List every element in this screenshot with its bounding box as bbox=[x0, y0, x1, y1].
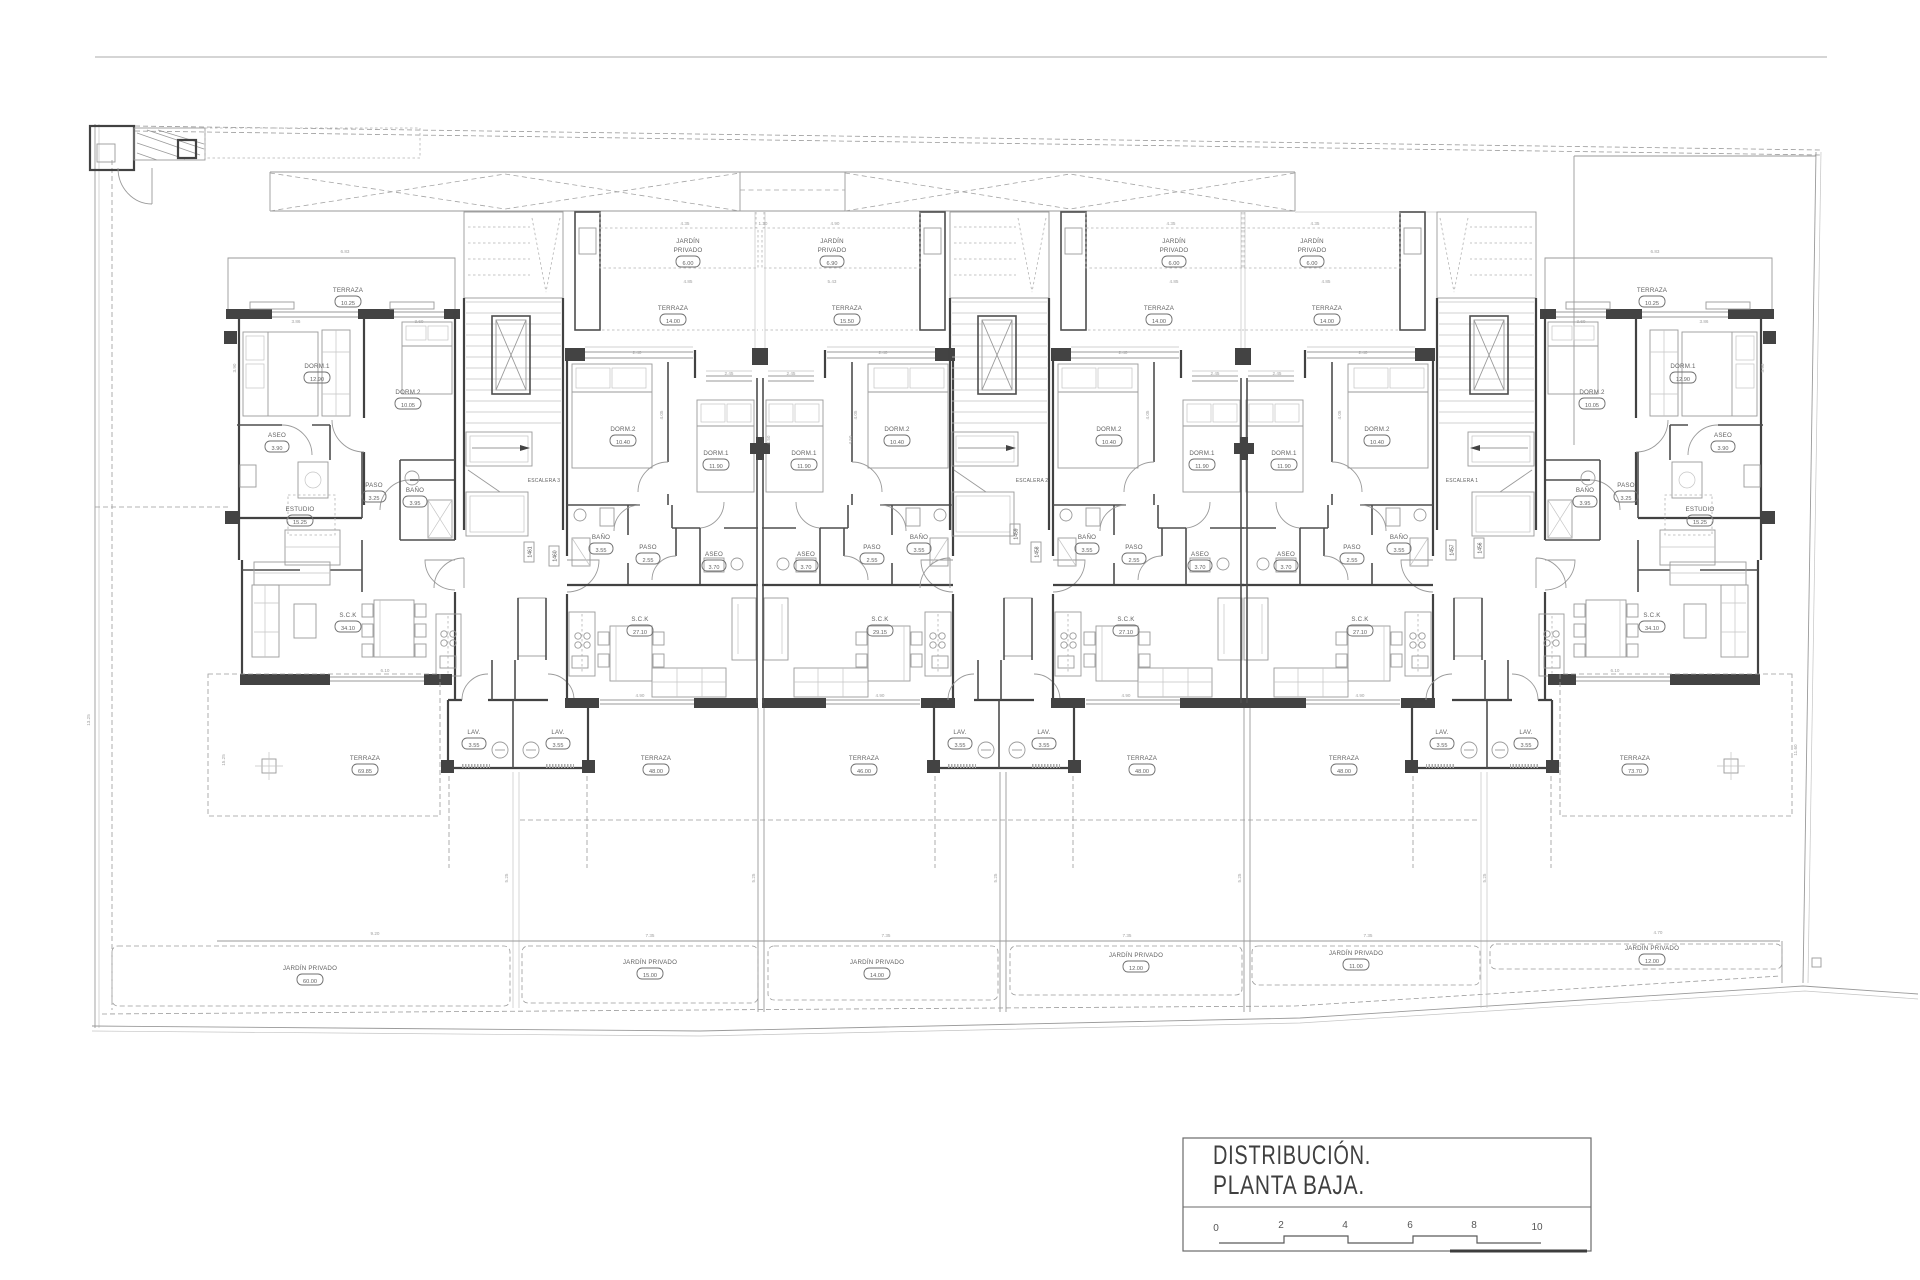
svg-text:TERRAZA: TERRAZA bbox=[1620, 755, 1651, 762]
svg-text:12.90: 12.90 bbox=[1676, 377, 1690, 383]
svg-text:6.00: 6.00 bbox=[1307, 261, 1318, 267]
svg-text:14.00: 14.00 bbox=[666, 319, 680, 325]
svg-text:5.25: 5.25 bbox=[751, 873, 756, 882]
svg-text:5.25: 5.25 bbox=[993, 873, 998, 882]
svg-text:15.00: 15.00 bbox=[643, 973, 657, 979]
svg-text:29.15: 29.15 bbox=[873, 630, 887, 636]
svg-text:4.50: 4.50 bbox=[848, 435, 853, 444]
svg-text:BAÑO: BAÑO bbox=[1078, 534, 1096, 541]
svg-text:15.25: 15.25 bbox=[293, 520, 307, 526]
svg-text:JARDÍN: JARDÍN bbox=[1300, 238, 1324, 245]
svg-text:10: 10 bbox=[1531, 1222, 1543, 1233]
svg-text:3.55: 3.55 bbox=[1394, 548, 1405, 554]
svg-text:11.90: 11.90 bbox=[1277, 464, 1291, 470]
svg-text:2: 2 bbox=[1278, 1220, 1284, 1231]
svg-text:DORM.1: DORM.1 bbox=[304, 363, 330, 370]
svg-text:PASO: PASO bbox=[1617, 482, 1635, 489]
svg-text:S.C.K: S.C.K bbox=[1351, 616, 1369, 623]
svg-text:46.00: 46.00 bbox=[857, 769, 871, 775]
svg-text:6.10: 6.10 bbox=[1611, 668, 1620, 673]
svg-text:TERRAZA: TERRAZA bbox=[832, 305, 863, 312]
svg-text:TERRAZA: TERRAZA bbox=[1329, 755, 1360, 762]
svg-text:10.05: 10.05 bbox=[1585, 403, 1599, 409]
svg-text:ESTUDIO: ESTUDIO bbox=[1686, 506, 1715, 513]
svg-text:3.70: 3.70 bbox=[1195, 565, 1206, 571]
svg-text:TERRAZA: TERRAZA bbox=[333, 287, 364, 294]
svg-text:10.40: 10.40 bbox=[616, 440, 630, 446]
svg-text:4.85: 4.85 bbox=[1170, 279, 1179, 284]
svg-text:2.45: 2.45 bbox=[787, 371, 796, 376]
svg-text:LAV.: LAV. bbox=[1037, 729, 1050, 736]
svg-text:DORM.2: DORM.2 bbox=[1096, 426, 1122, 433]
svg-text:3.86: 3.86 bbox=[292, 319, 301, 324]
svg-text:13.25: 13.25 bbox=[86, 714, 91, 726]
svg-text:JARDÍN PRIVADO: JARDÍN PRIVADO bbox=[623, 959, 677, 966]
svg-text:DORM.2: DORM.2 bbox=[395, 389, 421, 396]
svg-text:48.00: 48.00 bbox=[1135, 769, 1149, 775]
svg-text:10.05: 10.05 bbox=[401, 403, 415, 409]
svg-text:S.C.K: S.C.K bbox=[339, 612, 357, 619]
svg-text:4.70: 4.70 bbox=[1654, 930, 1663, 935]
svg-text:PRIVADO: PRIVADO bbox=[1160, 247, 1189, 254]
svg-text:LAV.: LAV. bbox=[467, 729, 480, 736]
svg-text:3.90: 3.90 bbox=[232, 363, 237, 372]
svg-text:69.85: 69.85 bbox=[358, 769, 372, 775]
svg-text:4.05: 4.05 bbox=[853, 410, 858, 419]
svg-text:4.85: 4.85 bbox=[1322, 279, 1331, 284]
svg-text:LAV.: LAV. bbox=[1519, 729, 1532, 736]
svg-text:6.83: 6.83 bbox=[1651, 249, 1660, 254]
svg-text:ESCALERA 3: ESCALERA 3 bbox=[528, 478, 561, 484]
svg-text:4.05: 4.05 bbox=[659, 410, 664, 419]
svg-text:10.25: 10.25 bbox=[1645, 301, 1659, 307]
svg-text:4.90: 4.90 bbox=[636, 693, 645, 698]
svg-text:2.45: 2.45 bbox=[1273, 371, 1282, 376]
svg-text:12.90: 12.90 bbox=[310, 377, 324, 383]
svg-text:LAV.: LAV. bbox=[1435, 729, 1448, 736]
svg-text:BAÑO: BAÑO bbox=[406, 487, 424, 494]
svg-text:3.70: 3.70 bbox=[709, 565, 720, 571]
svg-text:DORM.2: DORM.2 bbox=[610, 426, 636, 433]
svg-text:4.05: 4.05 bbox=[1337, 410, 1342, 419]
svg-text:BAÑO: BAÑO bbox=[1390, 534, 1408, 541]
svg-text:JARDÍN PRIVADO: JARDÍN PRIVADO bbox=[1625, 945, 1679, 952]
svg-text:TERRAZA: TERRAZA bbox=[641, 755, 672, 762]
svg-text:4.85: 4.85 bbox=[684, 279, 693, 284]
svg-text:BAÑO: BAÑO bbox=[592, 534, 610, 541]
svg-text:9.20: 9.20 bbox=[371, 931, 380, 936]
svg-text:DORM.2: DORM.2 bbox=[1364, 426, 1390, 433]
svg-text:3.86: 3.86 bbox=[1700, 319, 1709, 324]
svg-text:JARDÍN: JARDÍN bbox=[676, 238, 700, 245]
svg-text:6: 6 bbox=[1407, 1220, 1413, 1231]
svg-text:JARDÍN PRIVADO: JARDÍN PRIVADO bbox=[1109, 952, 1163, 959]
svg-text:2.55: 2.55 bbox=[1347, 558, 1358, 564]
svg-text:3.55: 3.55 bbox=[955, 743, 966, 749]
svg-text:7.35: 7.35 bbox=[1364, 933, 1373, 938]
svg-text:2.45: 2.45 bbox=[1211, 371, 1220, 376]
svg-text:1458: 1458 bbox=[1035, 546, 1041, 557]
svg-text:JARDÍN PRIVADO: JARDÍN PRIVADO bbox=[283, 965, 337, 972]
svg-text:3.55: 3.55 bbox=[914, 548, 925, 554]
svg-text:7.35: 7.35 bbox=[646, 933, 655, 938]
svg-text:11.60: 11.60 bbox=[1793, 744, 1798, 756]
svg-text:2.55: 2.55 bbox=[643, 558, 654, 564]
svg-text:11.00: 11.00 bbox=[1349, 964, 1363, 970]
svg-text:7.35: 7.35 bbox=[1123, 933, 1132, 938]
svg-text:10.40: 10.40 bbox=[1370, 440, 1384, 446]
svg-text:4.90: 4.90 bbox=[1122, 693, 1131, 698]
svg-text:4.90: 4.90 bbox=[876, 693, 885, 698]
svg-text:S.C.K: S.C.K bbox=[631, 616, 649, 623]
svg-text:3.55: 3.55 bbox=[469, 743, 480, 749]
svg-text:48.00: 48.00 bbox=[1337, 769, 1351, 775]
svg-text:DORM.1: DORM.1 bbox=[1670, 363, 1696, 370]
svg-text:4.05: 4.05 bbox=[1145, 410, 1150, 419]
svg-text:12.00: 12.00 bbox=[1645, 959, 1659, 965]
svg-text:ASEO: ASEO bbox=[1277, 551, 1295, 558]
svg-text:4.90: 4.90 bbox=[831, 221, 840, 226]
svg-text:1.30: 1.30 bbox=[759, 221, 768, 226]
svg-text:5.25: 5.25 bbox=[1237, 873, 1242, 882]
svg-text:3.90: 3.90 bbox=[1718, 446, 1729, 452]
svg-text:12.00: 12.00 bbox=[1129, 966, 1143, 972]
svg-text:5.25: 5.25 bbox=[504, 873, 509, 882]
svg-text:7.35: 7.35 bbox=[882, 933, 891, 938]
svg-text:4.90: 4.90 bbox=[1356, 693, 1365, 698]
svg-text:5.43: 5.43 bbox=[828, 279, 837, 284]
svg-text:DISTRIBUCIÓN.: DISTRIBUCIÓN. bbox=[1213, 1139, 1371, 1170]
svg-text:S.C.K: S.C.K bbox=[1643, 612, 1661, 619]
svg-text:27.10: 27.10 bbox=[633, 630, 647, 636]
svg-text:3.70: 3.70 bbox=[801, 565, 812, 571]
svg-text:34.10: 34.10 bbox=[341, 626, 355, 632]
svg-text:11.90: 11.90 bbox=[797, 464, 811, 470]
svg-text:4.35: 4.35 bbox=[1167, 221, 1176, 226]
svg-text:2.40: 2.40 bbox=[1119, 350, 1128, 355]
svg-text:3.95: 3.95 bbox=[1580, 501, 1591, 507]
svg-text:2.40: 2.40 bbox=[879, 350, 888, 355]
svg-text:DORM.1: DORM.1 bbox=[1189, 450, 1215, 457]
svg-text:6.00: 6.00 bbox=[1169, 261, 1180, 267]
svg-text:BAÑO: BAÑO bbox=[910, 534, 928, 541]
svg-text:60.00: 60.00 bbox=[303, 979, 317, 985]
svg-text:TERRAZA: TERRAZA bbox=[849, 755, 880, 762]
svg-text:PASO: PASO bbox=[1343, 544, 1361, 551]
svg-text:TERRAZA: TERRAZA bbox=[1312, 305, 1343, 312]
svg-text:1461: 1461 bbox=[528, 546, 534, 557]
svg-text:2.55: 2.55 bbox=[1129, 558, 1140, 564]
svg-text:2.45: 2.45 bbox=[725, 371, 734, 376]
svg-text:27.10: 27.10 bbox=[1119, 630, 1133, 636]
svg-text:PASO: PASO bbox=[863, 544, 881, 551]
svg-text:LAV.: LAV. bbox=[953, 729, 966, 736]
svg-text:PASO: PASO bbox=[1125, 544, 1143, 551]
svg-text:4.35: 4.35 bbox=[1311, 221, 1320, 226]
svg-text:TERRAZA: TERRAZA bbox=[350, 755, 381, 762]
svg-text:6.10: 6.10 bbox=[381, 668, 390, 673]
svg-text:1456: 1456 bbox=[1478, 542, 1484, 553]
svg-text:TERRAZA: TERRAZA bbox=[1127, 755, 1158, 762]
svg-text:ASEO: ASEO bbox=[705, 551, 723, 558]
svg-text:3.95: 3.95 bbox=[410, 501, 421, 507]
svg-text:JARDÍN PRIVADO: JARDÍN PRIVADO bbox=[850, 959, 904, 966]
svg-text:15.25: 15.25 bbox=[1693, 520, 1707, 526]
svg-text:3.60: 3.60 bbox=[415, 319, 424, 324]
svg-text:3.60: 3.60 bbox=[1577, 319, 1586, 324]
svg-text:DORM.1: DORM.1 bbox=[791, 450, 817, 457]
svg-text:PRIVADO: PRIVADO bbox=[818, 247, 847, 254]
svg-text:3.55: 3.55 bbox=[1437, 743, 1448, 749]
svg-text:2.55: 2.55 bbox=[867, 558, 878, 564]
svg-text:JARDÍN: JARDÍN bbox=[1162, 238, 1186, 245]
svg-text:ASEO: ASEO bbox=[268, 432, 286, 439]
svg-text:S.C.K: S.C.K bbox=[871, 616, 889, 623]
svg-text:3.90: 3.90 bbox=[272, 446, 283, 452]
svg-text:BAÑO: BAÑO bbox=[1576, 487, 1594, 494]
svg-text:3.25: 3.25 bbox=[369, 496, 380, 502]
svg-text:10.40: 10.40 bbox=[1102, 440, 1116, 446]
svg-text:27.10: 27.10 bbox=[1353, 630, 1367, 636]
svg-text:3.90: 3.90 bbox=[1760, 363, 1765, 372]
svg-text:JARDÍN: JARDÍN bbox=[820, 238, 844, 245]
svg-text:6.83: 6.83 bbox=[341, 249, 350, 254]
svg-text:3.55: 3.55 bbox=[553, 743, 564, 749]
svg-text:11.90: 11.90 bbox=[1195, 464, 1209, 470]
svg-text:1459: 1459 bbox=[1014, 528, 1020, 539]
svg-text:3.55: 3.55 bbox=[1082, 548, 1093, 554]
svg-text:LAV.: LAV. bbox=[551, 729, 564, 736]
svg-text:DORM.1: DORM.1 bbox=[1271, 450, 1297, 457]
svg-text:10.40: 10.40 bbox=[890, 440, 904, 446]
svg-text:6.90: 6.90 bbox=[827, 261, 838, 267]
svg-text:JARDÍN PRIVADO: JARDÍN PRIVADO bbox=[1329, 950, 1383, 957]
svg-text:DORM.2: DORM.2 bbox=[1579, 389, 1605, 396]
svg-text:PRIVADO: PRIVADO bbox=[674, 247, 703, 254]
svg-text:15.50: 15.50 bbox=[840, 319, 854, 325]
svg-text:ESCALERA 2: ESCALERA 2 bbox=[1016, 478, 1049, 484]
svg-text:14.00: 14.00 bbox=[1320, 319, 1334, 325]
svg-text:1457: 1457 bbox=[1450, 544, 1456, 555]
svg-text:ESTUDIO: ESTUDIO bbox=[286, 506, 315, 513]
svg-text:14.00: 14.00 bbox=[1152, 319, 1166, 325]
svg-text:TERRAZA: TERRAZA bbox=[658, 305, 689, 312]
svg-text:2.40: 2.40 bbox=[1359, 350, 1368, 355]
svg-text:PRIVADO: PRIVADO bbox=[1298, 247, 1327, 254]
svg-text:TERRAZA: TERRAZA bbox=[1144, 305, 1175, 312]
svg-text:3.25: 3.25 bbox=[1621, 496, 1632, 502]
svg-text:34.10: 34.10 bbox=[1645, 626, 1659, 632]
svg-text:15.25: 15.25 bbox=[221, 754, 226, 766]
svg-text:11.90: 11.90 bbox=[709, 464, 723, 470]
svg-text:5.25: 5.25 bbox=[1482, 873, 1487, 882]
svg-text:3.70: 3.70 bbox=[1281, 565, 1292, 571]
svg-text:73.70: 73.70 bbox=[1628, 769, 1642, 775]
svg-text:ESCALERA 1: ESCALERA 1 bbox=[1446, 478, 1479, 484]
svg-text:3.55: 3.55 bbox=[596, 548, 607, 554]
svg-text:PASO: PASO bbox=[365, 482, 383, 489]
svg-text:14.00: 14.00 bbox=[870, 973, 884, 979]
svg-text:DORM.2: DORM.2 bbox=[884, 426, 910, 433]
svg-text:4.35: 4.35 bbox=[681, 221, 690, 226]
svg-text:6.00: 6.00 bbox=[683, 261, 694, 267]
svg-text:1460: 1460 bbox=[553, 550, 559, 561]
svg-text:0: 0 bbox=[1213, 1223, 1219, 1234]
svg-text:ASEO: ASEO bbox=[797, 551, 815, 558]
svg-text:ASEO: ASEO bbox=[1714, 432, 1732, 439]
svg-text:48.00: 48.00 bbox=[649, 769, 663, 775]
svg-text:3.55: 3.55 bbox=[1039, 743, 1050, 749]
svg-text:3.55: 3.55 bbox=[1521, 743, 1532, 749]
svg-text:PLANTA BAJA.: PLANTA BAJA. bbox=[1213, 1170, 1365, 1200]
svg-text:TERRAZA: TERRAZA bbox=[1637, 287, 1668, 294]
svg-text:2.40: 2.40 bbox=[633, 350, 642, 355]
svg-text:PASO: PASO bbox=[639, 544, 657, 551]
svg-text:10.25: 10.25 bbox=[341, 301, 355, 307]
svg-text:ASEO: ASEO bbox=[1191, 551, 1209, 558]
svg-text:4: 4 bbox=[1342, 1220, 1348, 1231]
svg-text:DORM.1: DORM.1 bbox=[703, 450, 729, 457]
svg-text:4.50: 4.50 bbox=[766, 435, 771, 444]
svg-text:8: 8 bbox=[1471, 1220, 1477, 1231]
svg-text:S.C.K: S.C.K bbox=[1117, 616, 1135, 623]
